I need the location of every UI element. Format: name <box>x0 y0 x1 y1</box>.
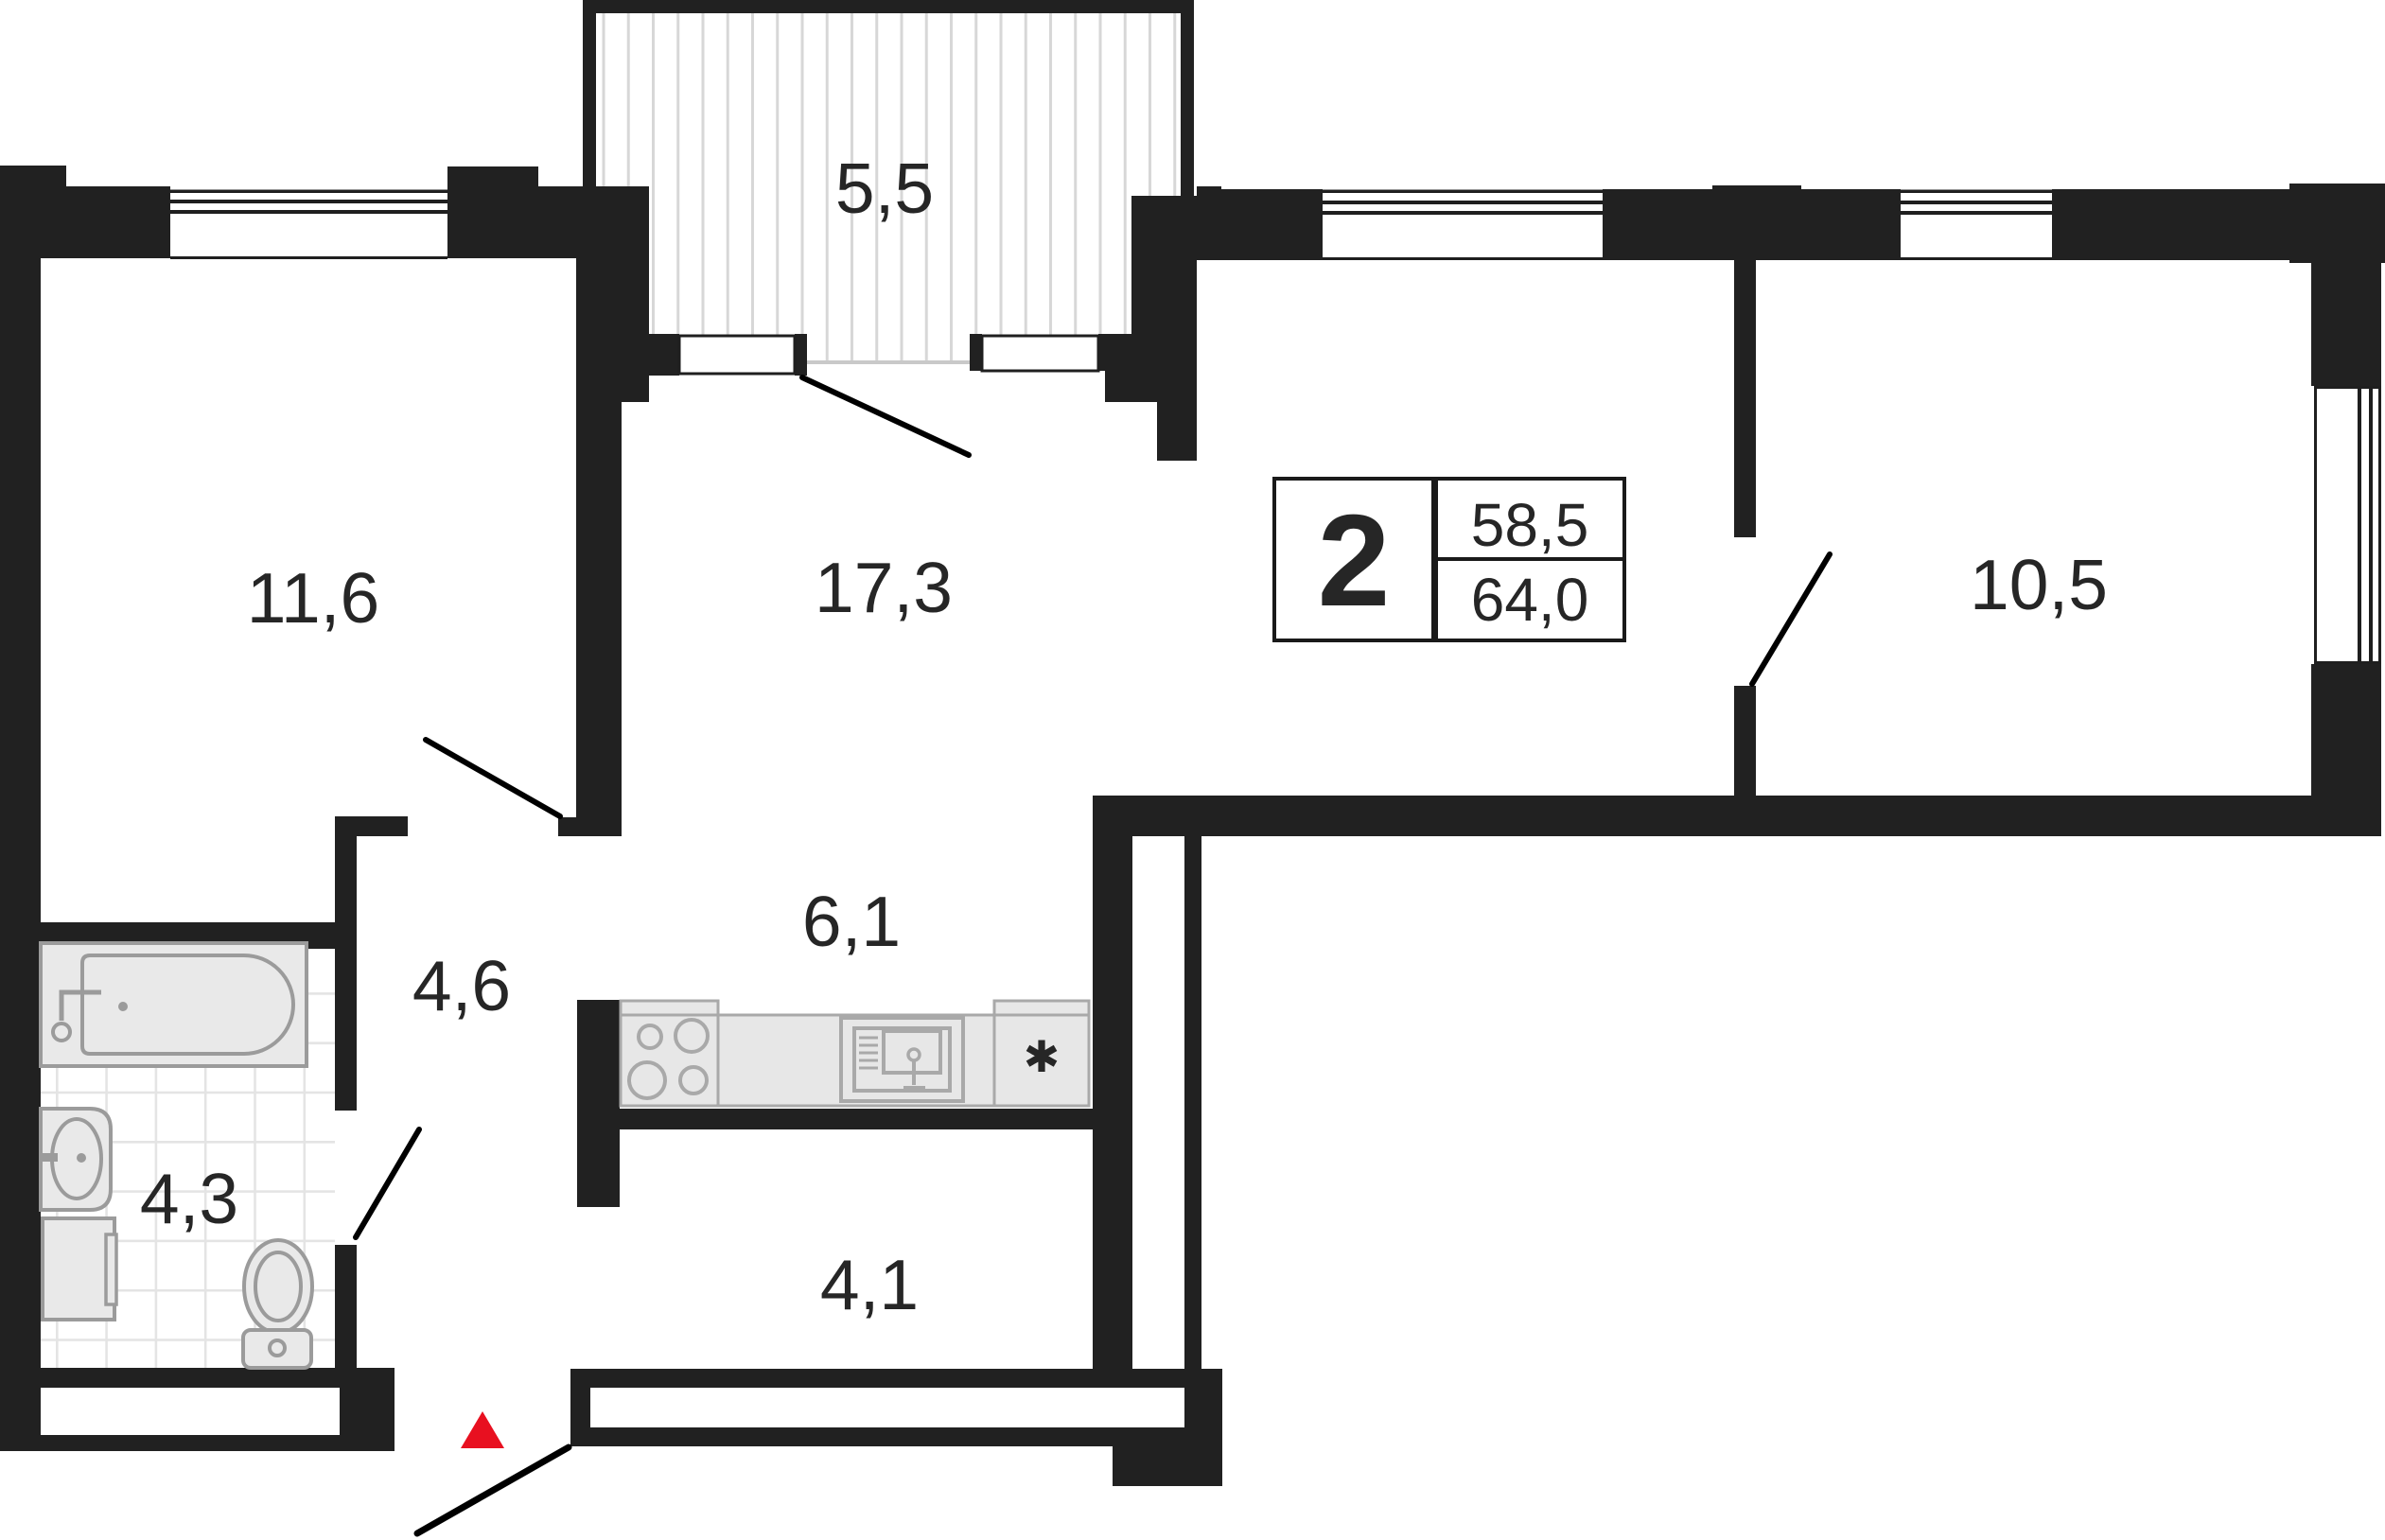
svg-text:17,3: 17,3 <box>815 548 953 627</box>
svg-text:64,0: 64,0 <box>1471 566 1589 634</box>
svg-text:4,1: 4,1 <box>820 1245 919 1324</box>
svg-text:✱: ✱ <box>1024 1032 1061 1081</box>
svg-text:6,1: 6,1 <box>802 882 901 961</box>
svg-text:58,5: 58,5 <box>1471 491 1589 559</box>
svg-text:11,6: 11,6 <box>247 558 379 638</box>
svg-text:2: 2 <box>1318 488 1391 634</box>
svg-text:4,6: 4,6 <box>412 946 511 1025</box>
svg-text:4,3: 4,3 <box>140 1159 238 1238</box>
svg-text:10,5: 10,5 <box>1970 545 2108 624</box>
svg-text:5,5: 5,5 <box>835 149 934 228</box>
